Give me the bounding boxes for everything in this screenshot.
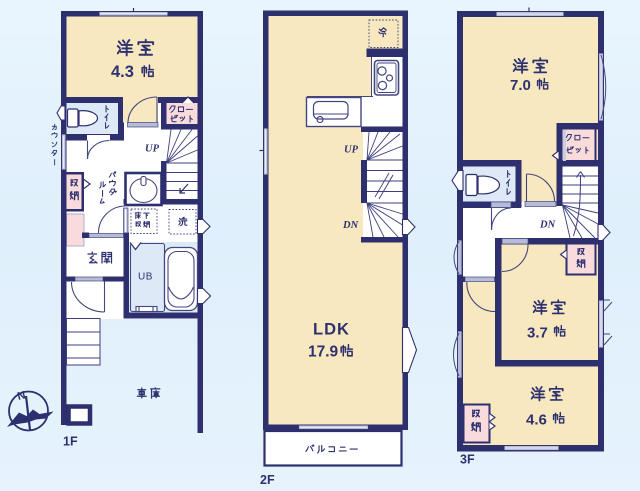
svg-text:4.3: 4.3: [111, 63, 134, 81]
svg-text:UB: UB: [138, 272, 153, 283]
svg-text:7.0: 7.0: [510, 77, 531, 94]
svg-text:LDK: LDK: [313, 321, 350, 339]
svg-text:17.9: 17.9: [308, 344, 339, 361]
svg-text:3.7: 3.7: [527, 325, 548, 342]
svg-text:DN: DN: [342, 220, 359, 231]
svg-text:UP: UP: [344, 145, 359, 156]
svg-text:3F: 3F: [460, 453, 475, 467]
svg-text:2F: 2F: [260, 473, 275, 487]
svg-text:DN: DN: [539, 220, 556, 231]
svg-text:1F: 1F: [63, 435, 78, 449]
svg-text:4.6: 4.6: [526, 412, 547, 429]
svg-text:UP: UP: [145, 144, 160, 155]
